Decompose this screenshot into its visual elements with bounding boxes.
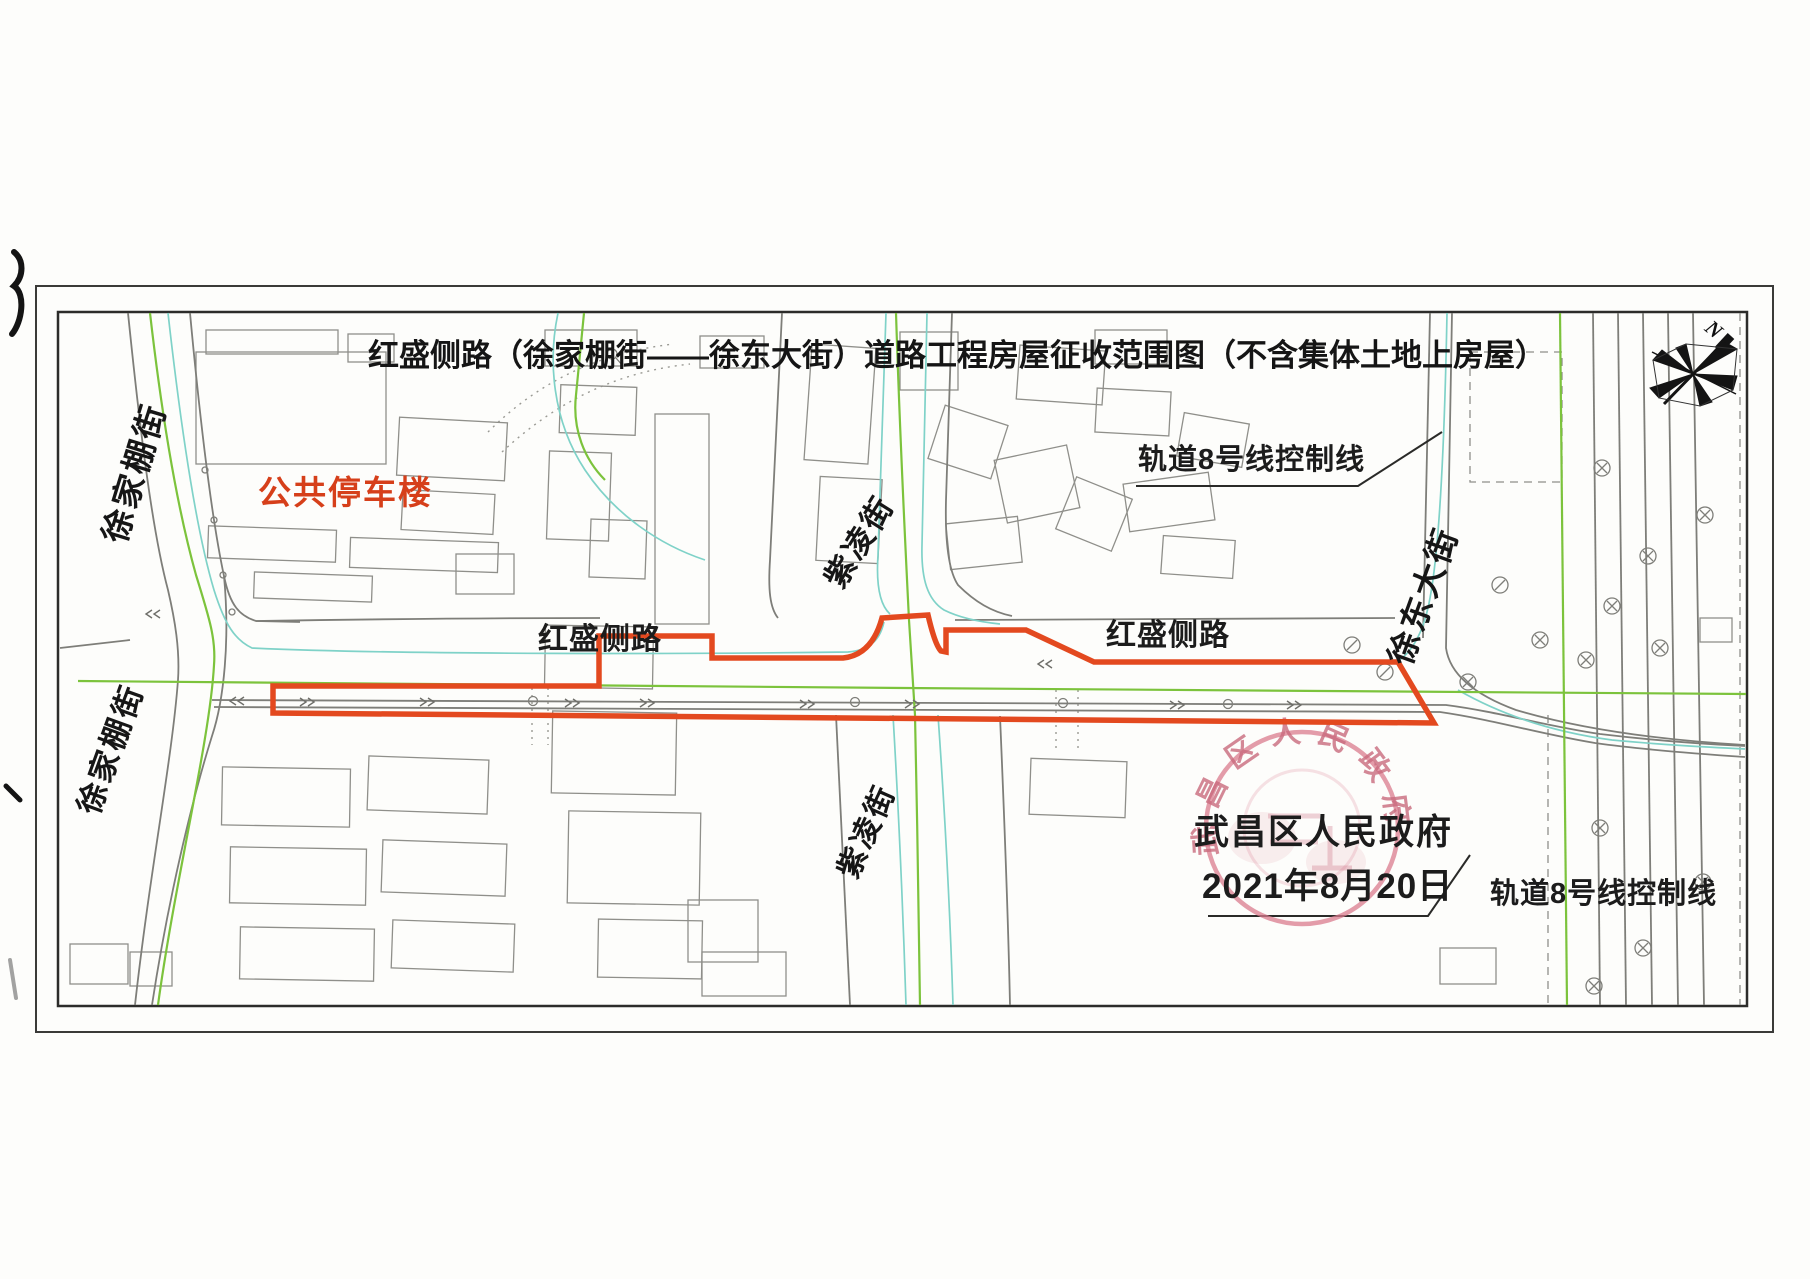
hongsheng-road-label-left: 红盛侧路 bbox=[538, 614, 662, 658]
map-frame bbox=[36, 286, 1773, 1032]
survey-symbols bbox=[202, 349, 1713, 994]
approval-authority: 武昌区人民政府 bbox=[1194, 804, 1453, 855]
approval-date: 2021年8月20日 bbox=[1202, 858, 1453, 909]
public-parking-label: 公共停车楼 bbox=[258, 466, 433, 514]
rail-line8-control-label-bottom: 轨道8号线控制线 bbox=[1490, 870, 1717, 912]
hongsheng-road-label-right: 红盛侧路 bbox=[1106, 610, 1230, 654]
map-canvas: 武昌区人民政府 bbox=[0, 0, 1810, 1279]
scan-artifacts bbox=[6, 252, 22, 998]
rail-line8-control-label-top: 轨道8号线控制线 bbox=[1138, 436, 1365, 478]
map-title: 红盛侧路（徐家棚街——徐东大街）道路工程房屋征收范围图（不含集体土地上房屋） bbox=[368, 330, 1546, 375]
scanned-map-page: 武昌区人民政府 红盛侧路（徐家棚街——徐东大街）道路工程房屋征收范围图（不含集体… bbox=[0, 0, 1810, 1279]
